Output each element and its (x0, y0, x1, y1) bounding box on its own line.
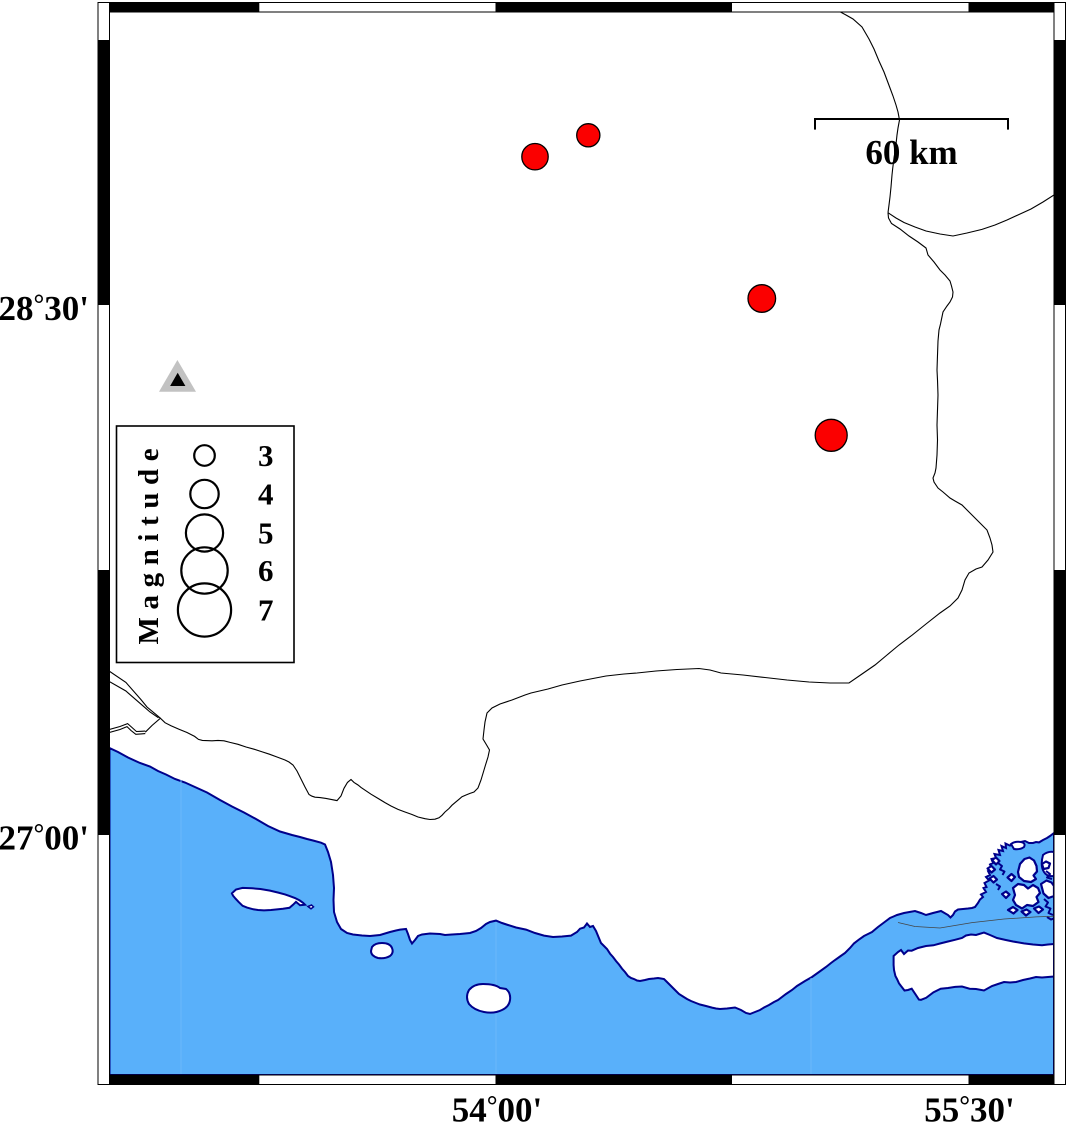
svg-text:4: 4 (258, 477, 274, 512)
svg-text:Magnitude: Magnitude (133, 441, 165, 645)
svg-text:5: 5 (258, 516, 274, 551)
svg-text:60 km: 60 km (865, 133, 957, 172)
svg-text:7: 7 (258, 593, 274, 628)
svg-text:6: 6 (258, 553, 274, 588)
svg-text:55°30': 55°30' (924, 1091, 1015, 1123)
svg-text:28°30': 28°30' (0, 289, 89, 328)
svg-text:3: 3 (258, 438, 274, 473)
svg-text:54°00': 54°00' (452, 1091, 543, 1123)
svg-text:27°00': 27°00' (0, 819, 89, 858)
